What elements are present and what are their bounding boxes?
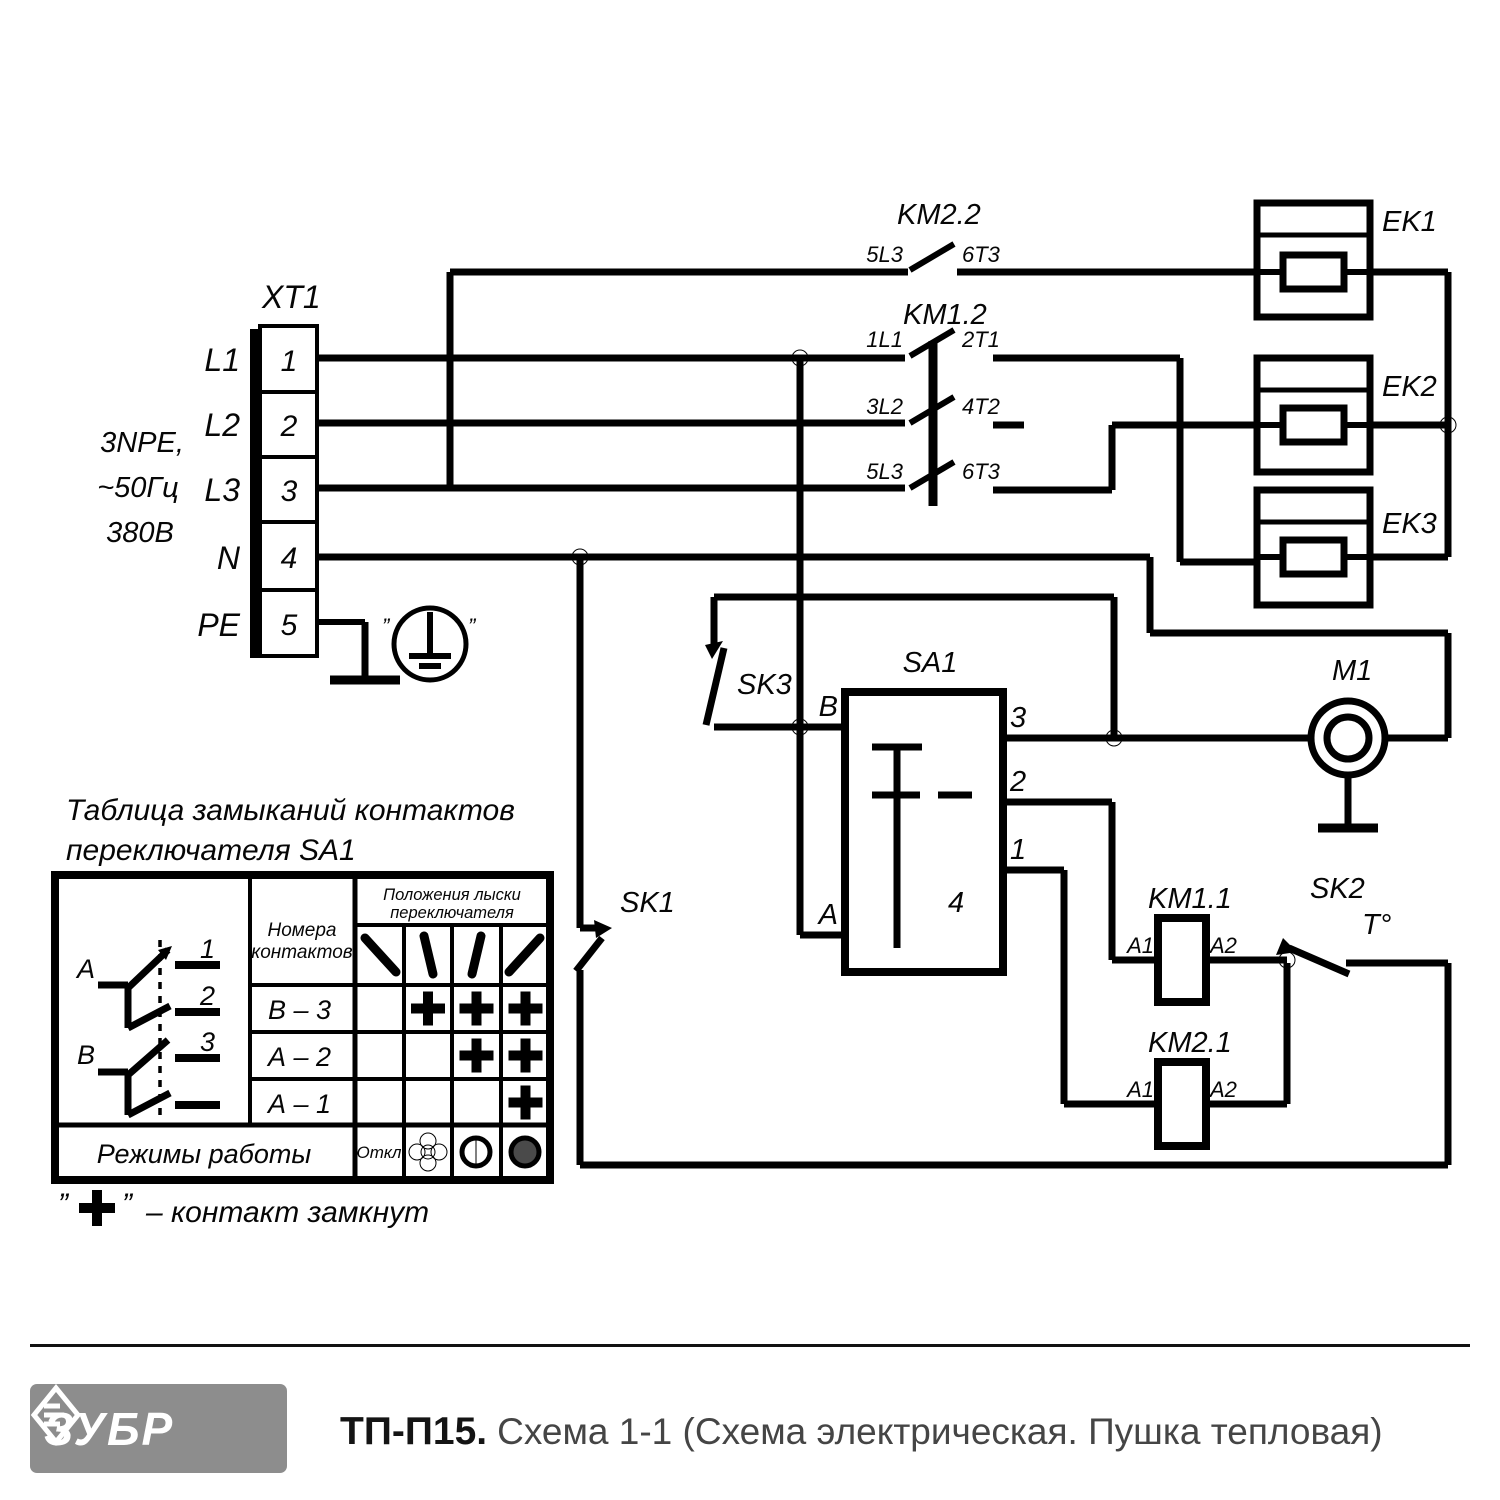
sa1-term-3: 3 (1010, 702, 1026, 734)
sa1-term-b: B (819, 691, 838, 723)
ek3-label: EK3 (1382, 508, 1437, 540)
km12-5L3: 5L3 (866, 459, 903, 484)
xt1-line-N: N (217, 540, 241, 576)
km21-a2: A2 (1208, 1077, 1237, 1102)
schematic-canvas: XT1 1 2 3 4 5 L1 L2 L3 N PE 3NPE, ~50Гц … (0, 0, 1500, 1340)
sk3-switch: SK3 (705, 597, 792, 725)
xt1-line-L2: L2 (204, 407, 240, 443)
page: XT1 1 2 3 4 5 L1 L2 L3 N PE 3NPE, ~50Гц … (0, 0, 1500, 1500)
half-heat-mode-icon (462, 1138, 490, 1166)
brand-emblem-icon (30, 1384, 82, 1446)
col-positions-line1: Положения лыски (383, 886, 521, 904)
ek2-label: EK2 (1382, 371, 1437, 403)
m1-motor: M1 (1311, 655, 1385, 828)
closed-contact-marks (411, 992, 543, 1120)
pictogram-3-label: 3 (200, 1027, 215, 1057)
km11-a2: A2 (1208, 933, 1237, 958)
xt1-num-3: 3 (281, 475, 298, 508)
km22-5L3: 5L3 (866, 242, 903, 267)
pictogram-b-label: B (77, 1040, 95, 1070)
sa1-term-a: A (817, 899, 838, 931)
legend-closed-contact: ” ” – контакт замкнут (58, 1188, 429, 1229)
full-heat-mode-icon (511, 1138, 539, 1166)
pictogram-2-label: 2 (199, 981, 215, 1011)
km12-contact: KM1.2 1L1 2T1 3L2 4T2 5L3 6T3 (866, 299, 1000, 506)
km22-contact: KM2.2 5L3 6T3 (866, 199, 1000, 270)
km21-a1: A1 (1125, 1077, 1154, 1102)
xt1-num-2: 2 (280, 410, 298, 443)
footer-separator (30, 1344, 1470, 1347)
table-title-line2: переключателя SA1 (66, 834, 356, 867)
km12-6T3: 6T3 (962, 459, 1001, 484)
pictogram-1-label: 1 (200, 934, 215, 964)
xt1-num-4: 4 (281, 542, 298, 575)
heater-ek2: EK2 (1257, 358, 1437, 472)
supply-line-1: 3NPE, (100, 427, 184, 459)
xt1-line-L3: L3 (204, 472, 240, 508)
earth-icon: ” ” (382, 608, 477, 680)
heater-ek1: EK1 (1257, 203, 1437, 317)
supply-label: 3NPE, ~50Гц 380В (97, 427, 184, 549)
modes-label: Режимы работы (97, 1139, 312, 1169)
heater-ek3: EK3 (1257, 490, 1437, 605)
row-label-a2: А – 2 (266, 1042, 331, 1072)
sk2-switch: SK2 T° (1276, 873, 1391, 974)
legend-quote-close: ” (122, 1188, 134, 1221)
km21-label: KM2.1 (1148, 1027, 1232, 1059)
pictogram-a-label: A (75, 954, 95, 984)
m1-label: M1 (1332, 655, 1372, 687)
km11-label: KM1.1 (1148, 883, 1232, 915)
sa1-table: Таблица замыканий контактов переключател… (55, 794, 550, 1229)
km21-coil: KM2.1 A1 A2 (1125, 1027, 1237, 1146)
supply-line-2: ~50Гц (97, 472, 179, 504)
col-contacts-line1: Номера (267, 920, 336, 941)
sa1-term-2: 2 (1009, 766, 1026, 798)
sk1-switch: SK1 (576, 887, 675, 971)
row-label-b3: В – 3 (268, 995, 331, 1025)
km12-2T1: 2T1 (961, 327, 1000, 352)
sa1-label: SA1 (903, 647, 958, 679)
legend-quote-open: ” (58, 1188, 70, 1221)
model-number: ТП-П15. (340, 1410, 487, 1453)
sk1-label: SK1 (620, 887, 675, 919)
off-label: Откл (357, 1143, 402, 1162)
earth-quote-close: ” (468, 614, 477, 639)
ek1-label: EK1 (1382, 206, 1437, 238)
sa1-term-4: 4 (948, 887, 964, 919)
xt1-label: XT1 (261, 279, 321, 315)
xt1-num-1: 1 (281, 345, 298, 378)
sa1-contact-pictogram: A B 1 2 3 (75, 934, 220, 1118)
caption-text: Схема 1-1 (Схема электрическая. Пушка те… (497, 1411, 1383, 1452)
sk2-temp-label: T° (1362, 909, 1391, 941)
km12-4T2: 4T2 (962, 394, 1000, 419)
sk3-label: SK3 (737, 669, 792, 701)
km12-1L1: 1L1 (866, 327, 903, 352)
km22-6T3: 6T3 (962, 242, 1001, 267)
xt1-line-L1: L1 (204, 342, 240, 378)
fan-mode-icon (409, 1133, 447, 1171)
col-contacts-line2: контактов (251, 942, 353, 963)
xt1-line-PE: PE (197, 607, 240, 643)
supply-line-3: 380В (106, 517, 174, 549)
km22-label: KM2.2 (897, 199, 981, 231)
legend-text: – контакт замкнут (145, 1196, 429, 1229)
xt1-terminal-block: XT1 1 2 3 4 5 L1 L2 L3 N PE (197, 279, 320, 658)
km11-a1: A1 (1125, 933, 1154, 958)
sk2-label: SK2 (1310, 873, 1365, 905)
drawing-caption: ТП-П15.Схема 1-1 (Схема электрическая. П… (340, 1410, 1383, 1454)
km11-coil: KM1.1 A1 A2 (1125, 883, 1237, 1002)
earth-quote-open: ” (382, 614, 391, 639)
km12-3L2: 3L2 (866, 394, 903, 419)
row-label-a1: А – 1 (266, 1089, 331, 1119)
sa1-term-1: 1 (1010, 834, 1026, 866)
sa1-selector: SA1 B A 3 2 1 4 (817, 647, 1026, 972)
xt1-num-5: 5 (281, 609, 298, 642)
col-positions-line2: переключателя (390, 904, 514, 922)
table-title-line1: Таблица замыканий контактов (66, 794, 515, 827)
brand-logo: ЗУБР (30, 1384, 287, 1473)
